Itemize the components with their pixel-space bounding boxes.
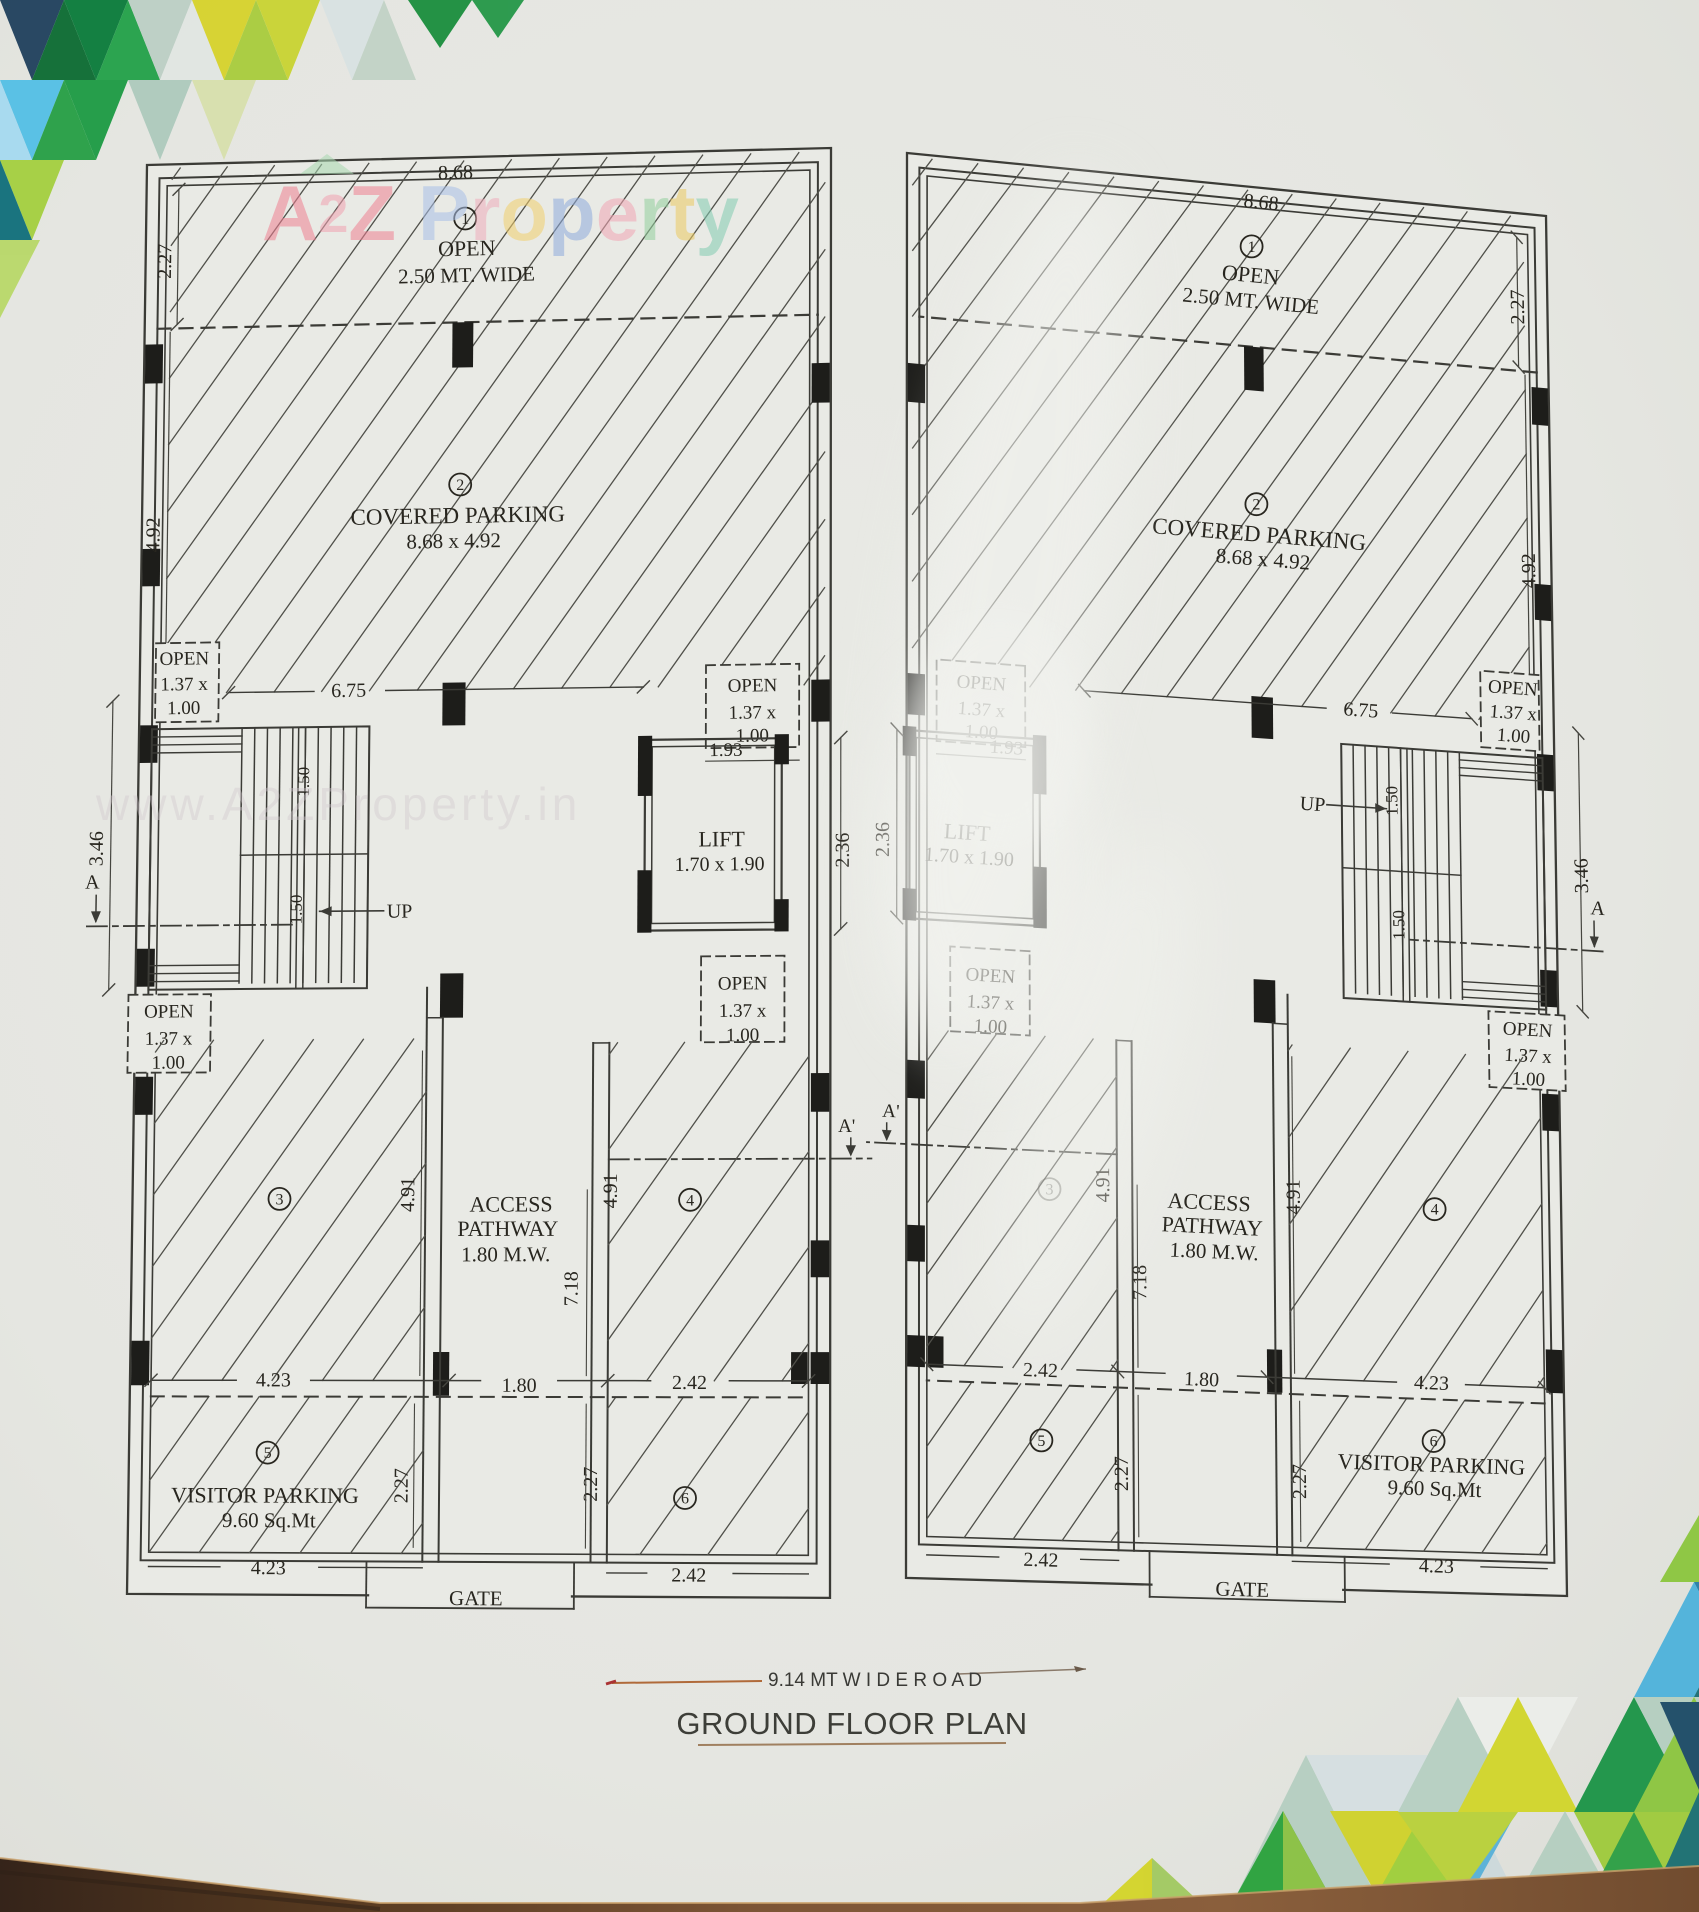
svg-text:1.37 x: 1.37 x [160, 674, 208, 696]
svg-text:4.23: 4.23 [1419, 1555, 1455, 1578]
svg-text:OPEN: OPEN [718, 973, 768, 994]
svg-text:ACCESS: ACCESS [469, 1191, 552, 1216]
svg-text:UP: UP [387, 900, 413, 922]
svg-text:1.37 x: 1.37 x [1489, 701, 1538, 725]
svg-text:1.50: 1.50 [1389, 910, 1408, 940]
svg-text:6.75: 6.75 [331, 680, 366, 702]
svg-text:1.37 x: 1.37 x [719, 1001, 767, 1022]
svg-text:3: 3 [276, 1191, 284, 1208]
svg-text:2.27: 2.27 [580, 1467, 602, 1502]
svg-text:9.14 MT W I D E R O A D: 9.14 MT W I D E R O A D [768, 1670, 982, 1691]
svg-text:9.60 Sq.Mt: 9.60 Sq.Mt [1387, 1475, 1482, 1502]
svg-text:GROUND FLOOR PLAN: GROUND FLOOR PLAN [676, 1706, 1027, 1741]
svg-text:2: 2 [1252, 497, 1260, 514]
svg-text:4.92: 4.92 [142, 517, 164, 552]
svg-text:1.37 x: 1.37 x [145, 1028, 193, 1049]
svg-text:1.00: 1.00 [167, 698, 201, 719]
svg-text:2.27: 2.27 [391, 1468, 413, 1503]
svg-text:Property: Property [418, 169, 739, 257]
svg-text:4.91: 4.91 [1283, 1179, 1305, 1214]
svg-text:1.70 x 1.90: 1.70 x 1.90 [674, 853, 764, 876]
svg-text:A': A' [838, 1116, 855, 1137]
svg-text:OPEN: OPEN [159, 648, 209, 670]
svg-text:2.42: 2.42 [1023, 1359, 1059, 1382]
svg-text:6: 6 [1430, 1434, 1438, 1451]
svg-text:1.80 M.W.: 1.80 M.W. [461, 1242, 550, 1266]
svg-text:OPEN: OPEN [727, 675, 777, 697]
svg-text:2.50 MT. WIDE: 2.50 MT. WIDE [398, 261, 535, 288]
svg-text:6.75: 6.75 [1343, 698, 1379, 722]
svg-text:LIFT: LIFT [698, 826, 745, 851]
svg-text:7.18: 7.18 [561, 1271, 583, 1306]
svg-text:1.50: 1.50 [287, 894, 306, 924]
svg-text:2.36: 2.36 [832, 833, 854, 868]
svg-text:9.60 Sq.Mt: 9.60 Sq.Mt [222, 1508, 316, 1532]
svg-text:5: 5 [264, 1445, 272, 1462]
svg-text:GATE: GATE [1215, 1576, 1269, 1601]
svg-text:2.27: 2.27 [1111, 1456, 1133, 1491]
svg-text:4.23: 4.23 [1414, 1372, 1450, 1395]
svg-text:1.93: 1.93 [709, 740, 743, 761]
svg-text:8.68: 8.68 [1243, 190, 1280, 215]
svg-text:A: A [85, 871, 100, 893]
svg-text:5: 5 [1037, 1433, 1045, 1450]
svg-text:www.A2ZProperty.in: www.A2ZProperty.in [95, 778, 581, 830]
svg-text:UP: UP [1299, 793, 1326, 817]
svg-text:A: A [1590, 897, 1606, 920]
svg-text:4: 4 [1431, 1202, 1439, 1219]
svg-text:GATE: GATE [449, 1586, 503, 1610]
svg-text:1.00: 1.00 [151, 1053, 184, 1074]
svg-text:6: 6 [681, 1491, 689, 1508]
svg-text:2.42: 2.42 [671, 1565, 706, 1587]
svg-text:1.00: 1.00 [1511, 1068, 1545, 1091]
svg-text:OPEN: OPEN [1487, 676, 1538, 701]
svg-text:VISITOR PARKING: VISITOR PARKING [171, 1482, 359, 1508]
svg-text:A': A' [882, 1101, 900, 1123]
svg-text:OPEN: OPEN [144, 1001, 194, 1022]
svg-text:2.42: 2.42 [1023, 1549, 1059, 1572]
svg-text:1.80 M.W.: 1.80 M.W. [1169, 1237, 1259, 1265]
svg-text:4.91: 4.91 [600, 1173, 622, 1208]
svg-text:4.23: 4.23 [251, 1557, 286, 1579]
svg-text:PATHWAY: PATHWAY [1161, 1211, 1263, 1241]
svg-text:2.27: 2.27 [1507, 289, 1530, 324]
svg-text:2: 2 [456, 477, 464, 494]
svg-text:3.46: 3.46 [1571, 858, 1594, 893]
svg-text:OPEN: OPEN [1221, 260, 1281, 290]
svg-text:4.91: 4.91 [397, 1177, 419, 1212]
svg-text:4.92: 4.92 [1518, 553, 1541, 588]
svg-text:1.37 x: 1.37 x [728, 702, 776, 724]
svg-text:1.80: 1.80 [1184, 1368, 1220, 1391]
svg-text:1.37 x: 1.37 x [1504, 1045, 1553, 1069]
svg-text:4.23: 4.23 [256, 1369, 291, 1391]
svg-text:1.00: 1.00 [726, 1025, 759, 1046]
svg-text:2.27: 2.27 [154, 244, 176, 279]
svg-text:8.68 x 4.92: 8.68 x 4.92 [406, 528, 501, 554]
svg-text:PATHWAY: PATHWAY [457, 1216, 558, 1241]
svg-text:7.18: 7.18 [1129, 1265, 1151, 1300]
svg-text:2.42: 2.42 [672, 1372, 707, 1394]
svg-text:1: 1 [1248, 239, 1256, 256]
svg-text:4: 4 [686, 1192, 694, 1209]
svg-text:3.46: 3.46 [86, 831, 109, 866]
svg-text:1.00: 1.00 [1496, 725, 1531, 748]
svg-text:COVERED PARKING: COVERED PARKING [350, 501, 565, 530]
svg-text:1.50: 1.50 [1382, 786, 1401, 816]
svg-text:1.80: 1.80 [502, 1375, 537, 1397]
svg-text:OPEN: OPEN [1502, 1018, 1553, 1042]
